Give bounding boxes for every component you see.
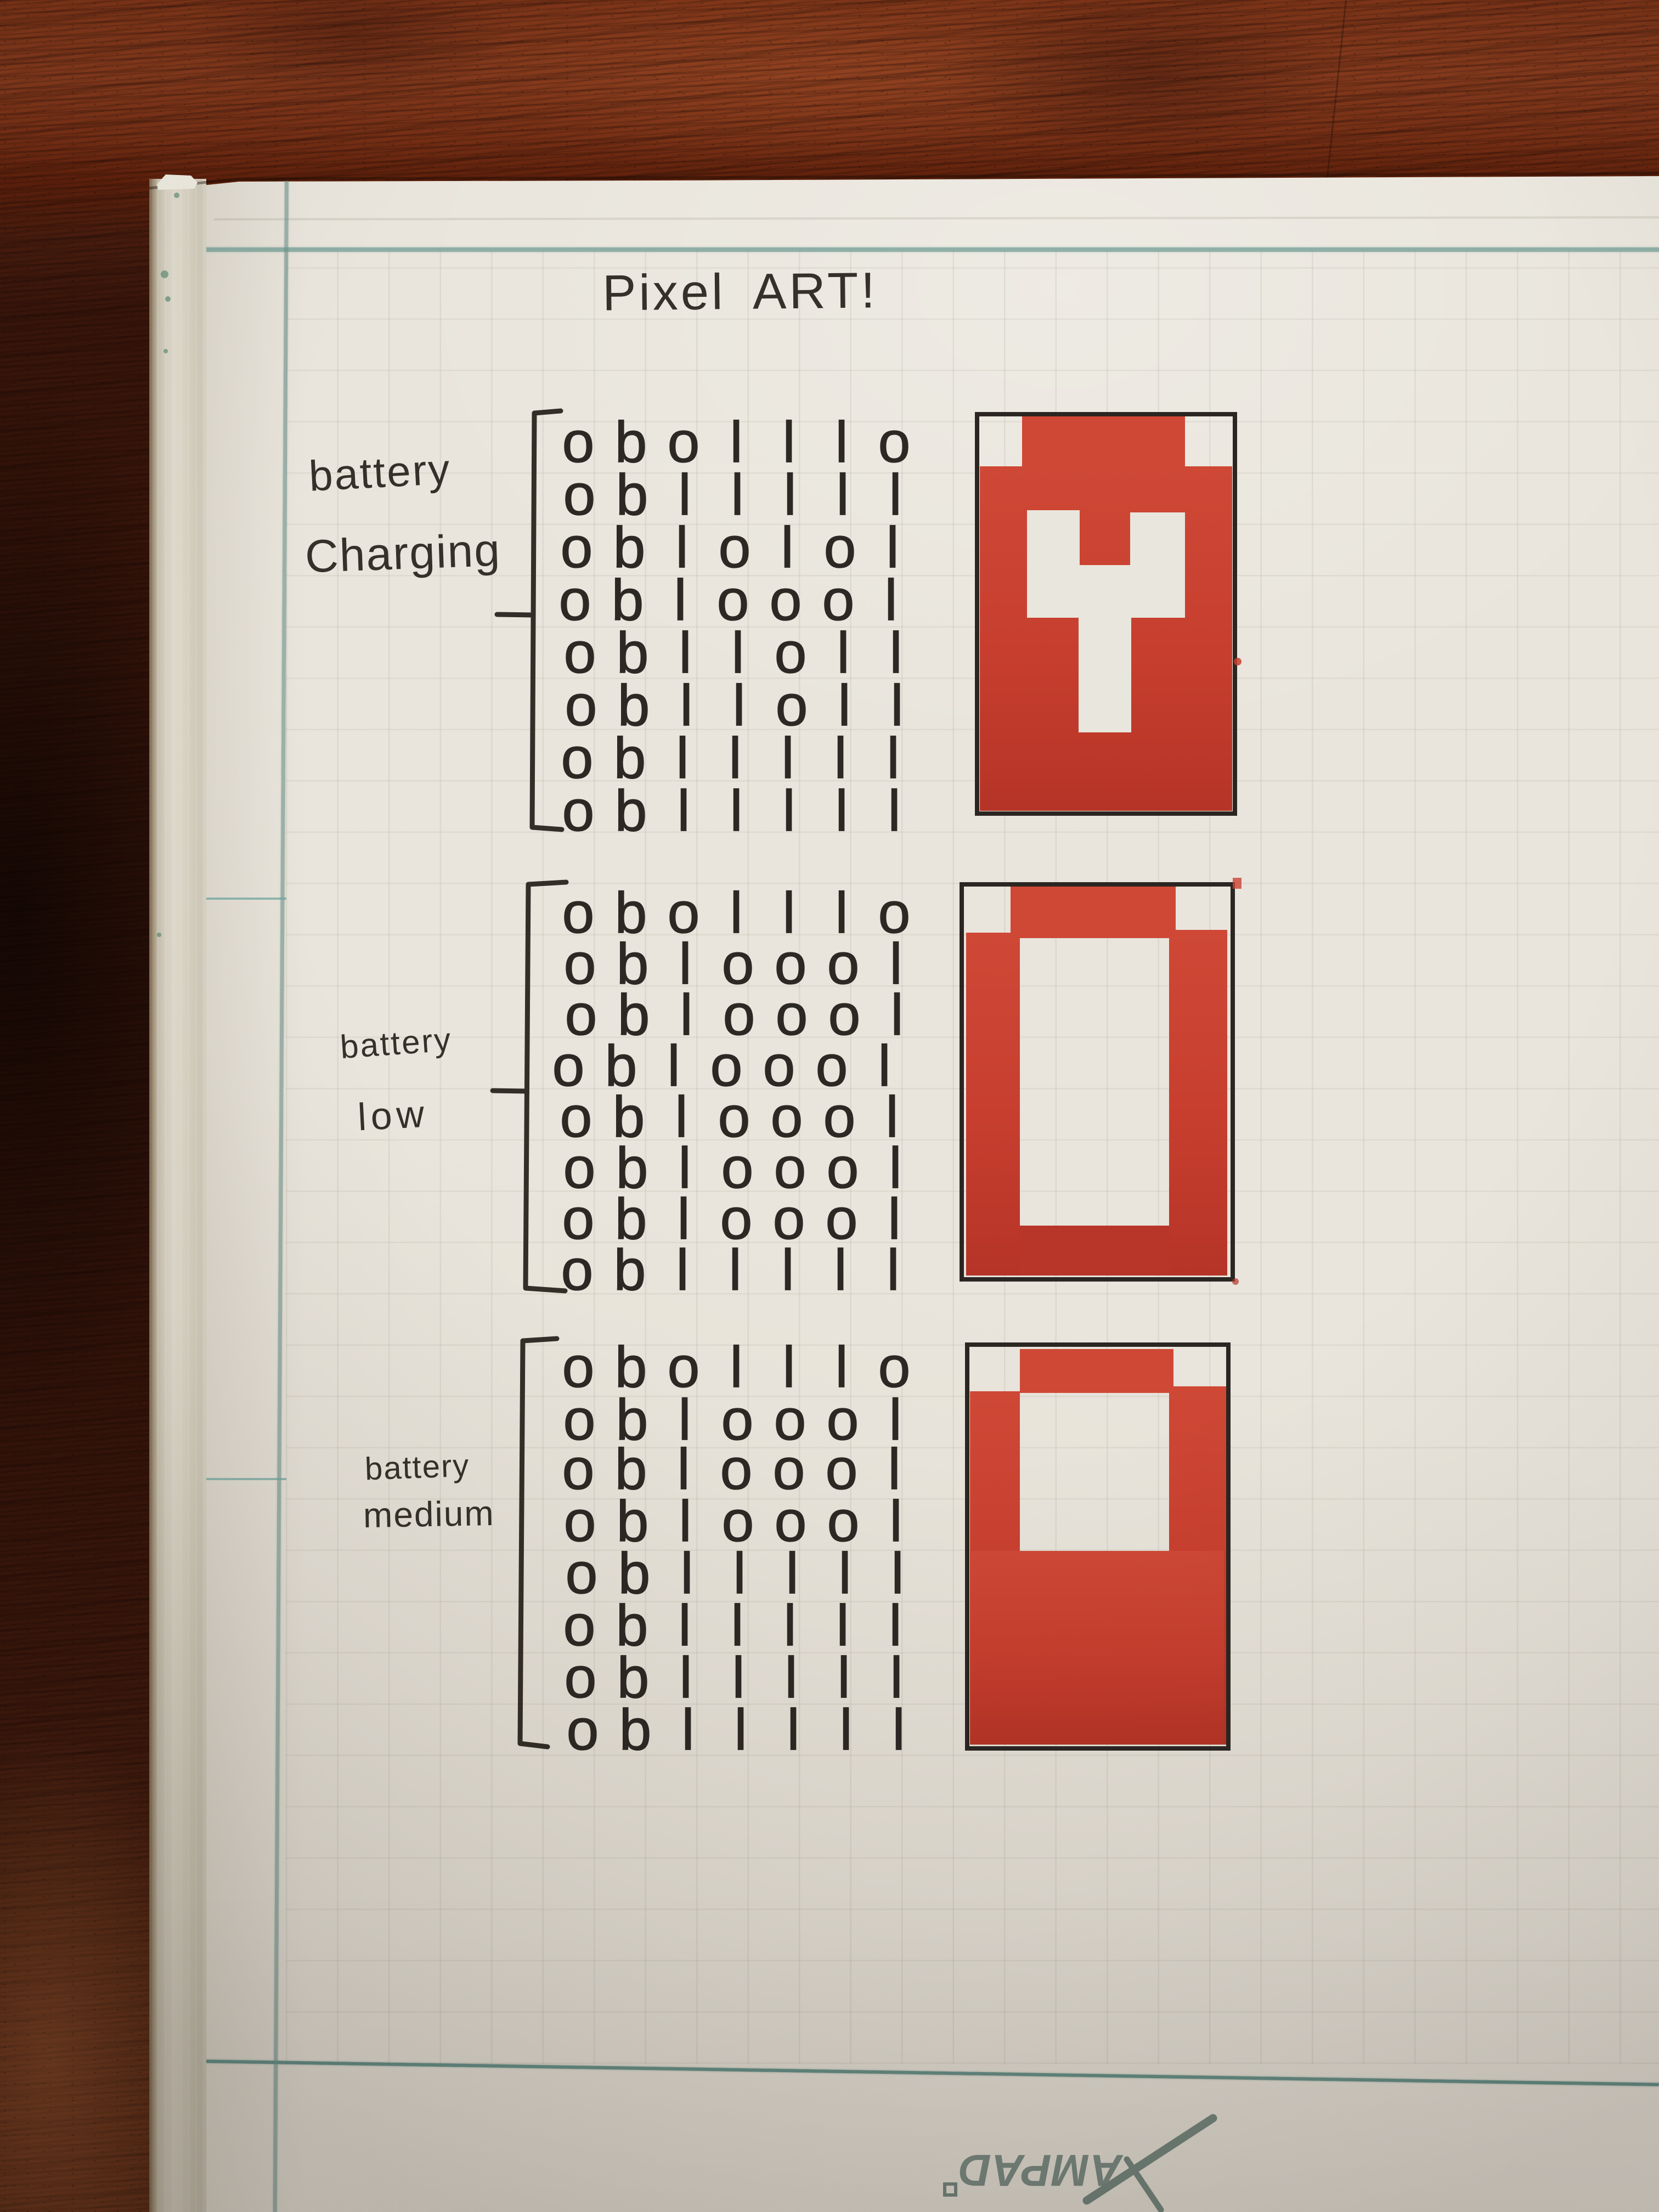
svg-text:AMPAD: AMPAD [958,2145,1124,2195]
